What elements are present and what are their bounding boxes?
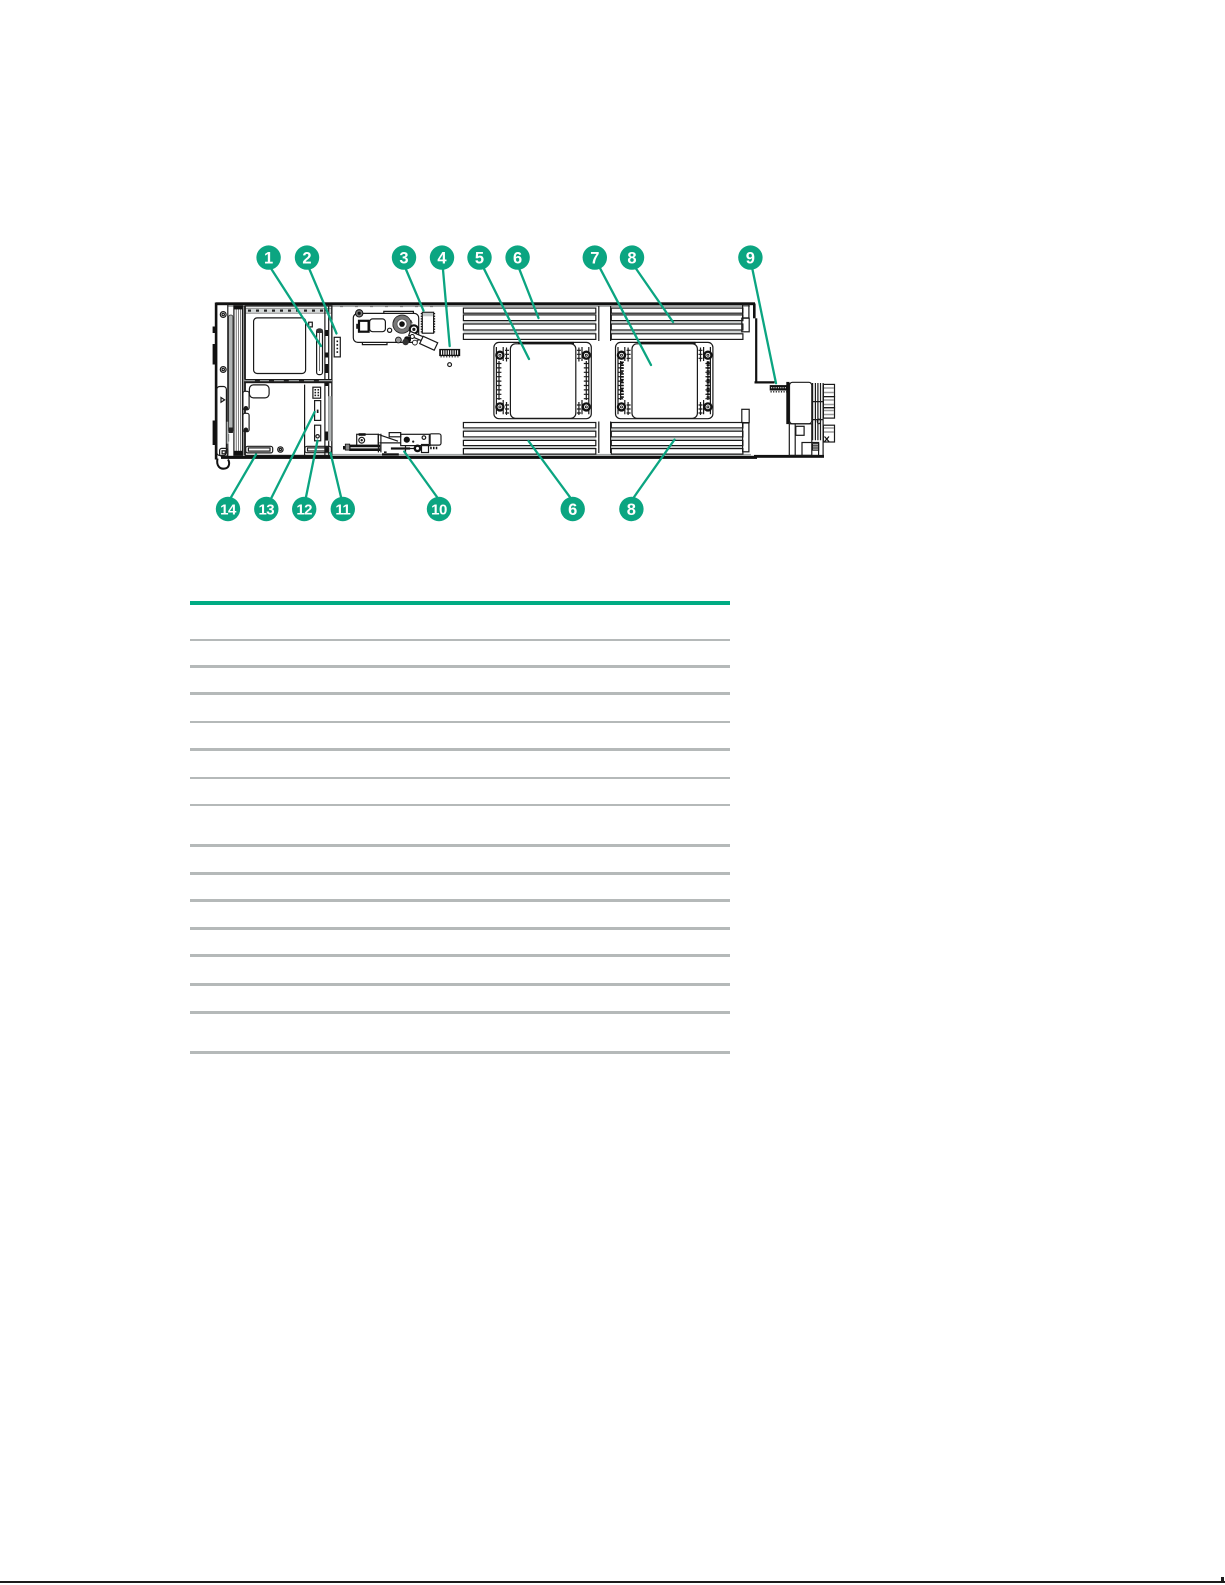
svg-text:6: 6 — [513, 249, 522, 267]
svg-text:3: 3 — [399, 249, 408, 267]
svg-text:14: 14 — [220, 502, 237, 519]
svg-text:12: 12 — [296, 502, 312, 519]
svg-text:1: 1 — [264, 249, 273, 267]
svg-text:8: 8 — [627, 501, 636, 519]
svg-text:4: 4 — [437, 249, 447, 267]
svg-text:5: 5 — [475, 249, 484, 267]
svg-text:7: 7 — [590, 249, 599, 267]
svg-text:2: 2 — [302, 249, 311, 267]
svg-text:6: 6 — [568, 501, 577, 519]
svg-text:9: 9 — [746, 249, 755, 267]
svg-text:10: 10 — [431, 502, 447, 519]
svg-text:8: 8 — [627, 249, 636, 267]
svg-text:13: 13 — [258, 502, 274, 519]
svg-text:11: 11 — [335, 502, 350, 519]
